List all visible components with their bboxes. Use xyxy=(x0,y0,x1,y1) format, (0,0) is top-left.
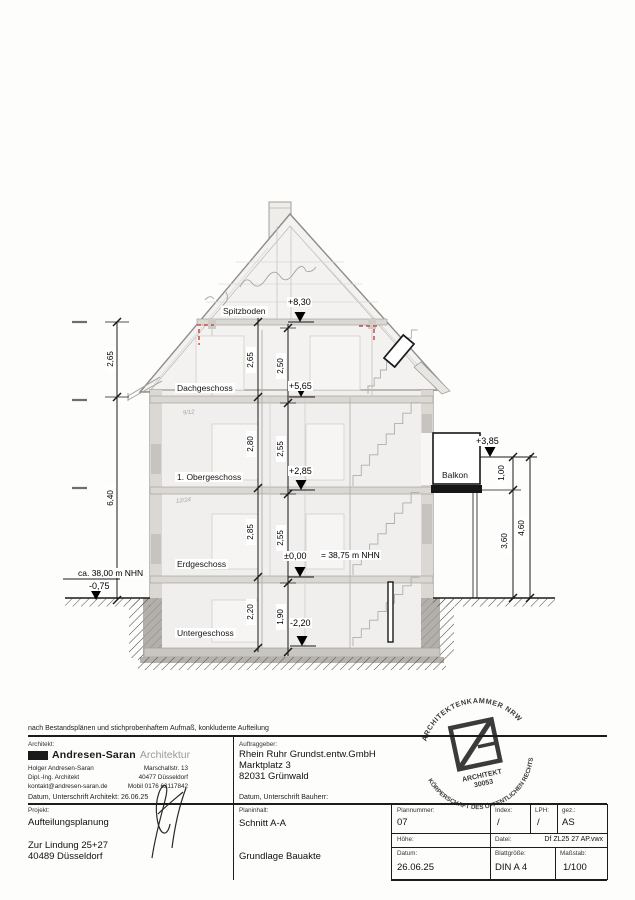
section-drawing: ARCHITEKTENKAMMER NRW KÖRPERSCHAFT DES Ö… xyxy=(0,0,635,900)
floor-label-erdgeschoss: Erdgeschoss xyxy=(175,559,228,569)
blattgroesse-label: Blattgröße: xyxy=(495,850,526,857)
datei-value: Df ZL25 27 AP.vwx xyxy=(515,836,603,843)
architect-email: kontakt@andresen-saran.de xyxy=(28,782,108,791)
firm-name-light: Architektur xyxy=(140,749,190,761)
index-label: Index: xyxy=(495,807,512,814)
pencil-mark-1: 9/12 xyxy=(183,409,195,416)
grid-row-rule-1 xyxy=(391,833,607,834)
floor-label-obergeschoss: 1. Obergeschoss xyxy=(175,472,243,482)
elevation-minus220: -2,20 xyxy=(289,618,312,628)
dim-balcony-460: 4,60 xyxy=(517,515,527,541)
architect-label: Architekt: xyxy=(28,741,54,748)
architect-firm: Andresen-Saran Architektur xyxy=(28,749,190,761)
massstab-value: 1/100 xyxy=(563,862,587,873)
firm-logo xyxy=(28,751,48,760)
architect-person: Holger Andresen-Saran xyxy=(28,764,94,773)
titleblock-divider-1 xyxy=(233,736,234,880)
titleblock-top-rule xyxy=(28,735,607,737)
elevation-565: +5,65 xyxy=(288,381,313,391)
lph-value: / xyxy=(537,817,540,828)
chamber-stamp: ARCHITEKTENKAMMER NRW KÖRPERSCHAFT DES Ö… xyxy=(411,686,544,822)
architect-title: Dipl.-Ing. Architekt xyxy=(28,773,79,782)
dim-clear-190: 1,90 xyxy=(276,604,286,630)
dim-floor-220: 2,20 xyxy=(246,599,256,625)
dim-outer-640: 6,40 xyxy=(106,485,116,511)
client-name: Rhein Ruhr Grundst.entw.GmbH xyxy=(239,749,376,760)
floor-label-spitzboden: Spitzboden xyxy=(221,306,268,316)
hoehe-label: Höhe: xyxy=(397,836,414,843)
grid-divider-c xyxy=(557,804,558,833)
index-value: / xyxy=(497,817,500,828)
plan-basis-note: nach Bestandsplänen und stichprobenhafte… xyxy=(28,725,269,732)
elevation-830: +8,30 xyxy=(287,297,312,307)
massstab-label: Maßstab: xyxy=(560,850,586,857)
dim-floor-285: 2,85 xyxy=(246,519,256,545)
gez-label: gez.: xyxy=(562,807,576,814)
datum-label: Datum: xyxy=(397,850,417,857)
titleblock-mid-rule xyxy=(28,803,607,805)
grid-bottom-rule xyxy=(391,879,607,881)
plan-content-basis: Grundlage Bauakte xyxy=(239,851,321,862)
architect-signature xyxy=(152,785,186,858)
scanned-plan-page: { "page": { "note": "nach Bestandsplänen… xyxy=(0,0,635,900)
gez-value: AS xyxy=(562,817,575,828)
grid-left-edge xyxy=(391,804,392,880)
ground-level-note: ca. 38,00 m NHN xyxy=(77,568,144,578)
balcony-label: Balkon xyxy=(440,470,470,480)
client-label: Auftraggeber: xyxy=(239,741,277,748)
dim-clear-250: 2,50 xyxy=(276,353,286,379)
architect-street: Marschallstr. 13 xyxy=(108,764,188,773)
dim-balcony-100: 1,00 xyxy=(497,460,507,486)
grid-row-rule-2 xyxy=(391,847,607,849)
plannummer-value: 07 xyxy=(397,817,408,828)
architect-city: 40477 Düsseldorf xyxy=(108,773,188,782)
dim-floor-265: 2,65 xyxy=(246,347,256,373)
dim-balcony-360: 3,60 xyxy=(500,528,510,554)
plan-content-label: Planinhalt: xyxy=(239,807,268,814)
elevation-minus075: -0,75 xyxy=(88,581,111,591)
floor-label-untergeschoss: Untergeschoss xyxy=(175,628,236,638)
architect-signature-label: Datum, Unterschrift Architekt: 26.06.25 xyxy=(28,794,148,801)
dim-clear-255b: 2,55 xyxy=(276,525,286,551)
grid-divider-b xyxy=(530,804,531,833)
building-section xyxy=(128,202,450,663)
dim-clear-255a: 2,55 xyxy=(276,436,286,462)
lph-label: LPH: xyxy=(535,807,549,814)
client-city: 82031 Grünwald xyxy=(239,771,309,782)
grid-right-edge xyxy=(607,804,608,880)
elevation-285: +2,85 xyxy=(288,466,313,476)
elevation-000: ±0,00 xyxy=(283,551,307,561)
project-name: Aufteilungsplanung xyxy=(28,817,109,828)
project-label: Projekt: xyxy=(28,807,49,814)
project-city: 40489 Düsseldorf xyxy=(28,851,102,862)
elevation-385: +3,85 xyxy=(475,436,500,446)
client-street: Marktplatz 3 xyxy=(239,760,291,771)
floor-label-dachgeschoss: Dachgeschoss xyxy=(175,383,235,393)
dim-floor-280: 2,80 xyxy=(246,431,256,457)
architect-phone: Mobil 0176 62117842 xyxy=(108,782,188,791)
dim-outer-265: 2,65 xyxy=(106,346,116,372)
plan-content-name: Schnitt A-A xyxy=(239,818,286,829)
grid-divider-d xyxy=(555,847,556,880)
blattgroesse-value: DIN A 4 xyxy=(495,862,527,873)
datei-label: Datei: xyxy=(495,836,511,843)
firm-name-bold: Andresen-Saran xyxy=(52,749,136,761)
grid-divider-a xyxy=(490,804,491,880)
client-signature-label: Datum, Unterschrift Bauherr: xyxy=(239,794,328,801)
plannummer-label: Plannummer: xyxy=(397,807,434,814)
elevation-000-nhn: = 38,75 m NHN xyxy=(320,550,381,560)
datum-value: 26.06.25 xyxy=(397,862,434,873)
project-street: Zur Lindung 25+27 xyxy=(28,840,108,851)
